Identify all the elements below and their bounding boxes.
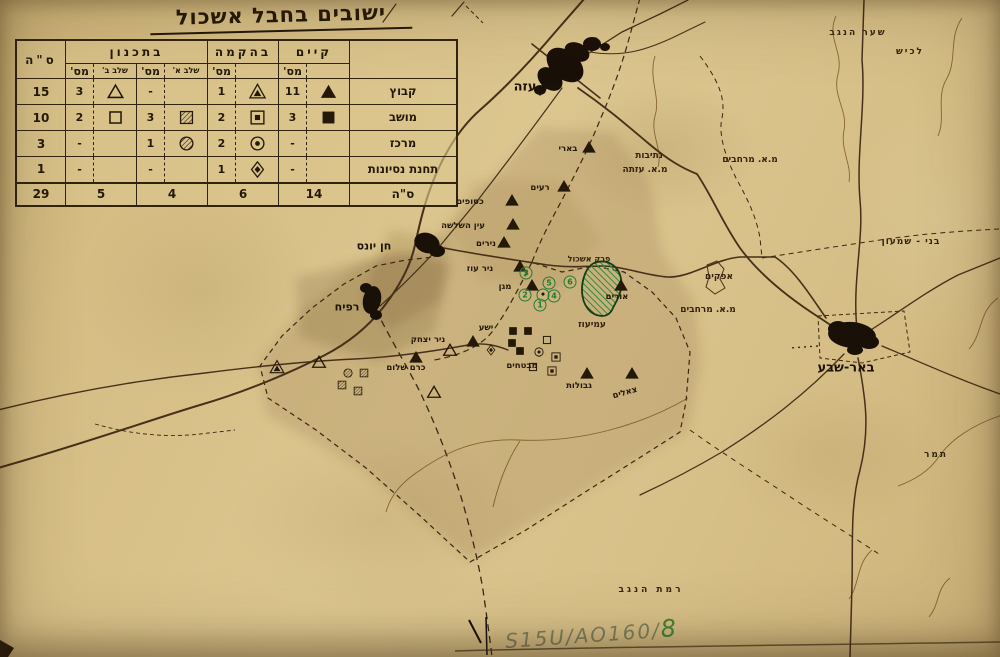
settlement-marker-square-filled <box>523 326 534 337</box>
area-label: אפקים <box>705 272 733 282</box>
area-label: מ.א. מרחבים <box>680 305 736 315</box>
legend-corner-cell <box>350 40 458 79</box>
settlement-marker-triangle-ring <box>270 360 285 375</box>
legend-count-cell: - <box>279 157 307 183</box>
legend-grand-total: 29 <box>16 183 66 206</box>
legend-row-total: 10 <box>16 105 66 131</box>
settlement-marker-square-ring <box>547 366 558 377</box>
settlement-marker-triangle-filled <box>409 350 424 365</box>
legend-symbol-cell <box>165 79 208 105</box>
legend-subheader-stage-b: שלב ב' <box>94 64 137 79</box>
legend-subheader-num: מס' <box>208 64 236 79</box>
settlement-marker-square-empty <box>542 335 553 346</box>
city-label: חן יונס <box>357 240 392 253</box>
legend-total-stage-a: 4 <box>137 183 208 206</box>
legend-subheader-stage-a: שלב א' <box>165 64 208 79</box>
legend-count-cell: - <box>137 157 165 183</box>
legend-row-label: קבוץ <box>350 79 458 105</box>
legend-symbol-cell <box>94 105 137 131</box>
legend-row: מושב323210 <box>16 105 457 131</box>
legend-row: תחנת נסיונות-1--1 <box>16 157 457 183</box>
settlement-marker-triangle-filled <box>580 366 595 381</box>
legend-subheader <box>236 64 279 79</box>
settlement-label: כרם שלום <box>386 363 425 373</box>
settlement-marker-diamond-ring <box>486 345 497 356</box>
legend-subheader-num: מס' <box>137 64 165 79</box>
legend-row: קבוץ111-315 <box>16 79 457 105</box>
city-label: באר-שבע <box>817 361 874 376</box>
legend-symbol-cell <box>236 105 279 131</box>
area-label: תמר <box>924 450 948 460</box>
area-label: מ.א. עזתה <box>623 165 668 175</box>
legend-count-cell: 3 <box>279 105 307 131</box>
area-label: פרק אשכול <box>568 255 611 264</box>
settlement-label: רעים <box>530 183 549 193</box>
area-label: שער הנגב <box>829 28 886 38</box>
legend-totals-label: ס"ה <box>350 183 458 206</box>
legend-count-cell: 2 <box>66 105 94 131</box>
map-scan: ישובים בחבל אשכול קיים בהקמה בתכנון ס"ה … <box>0 0 1000 657</box>
legend-count-cell: 2 <box>208 105 236 131</box>
legend-row-total: 15 <box>16 79 66 105</box>
city-label: עזה <box>514 80 537 95</box>
corner-mark <box>0 640 14 657</box>
legend-row: מרכז-21-3 <box>16 131 457 157</box>
green-number-marker: 3 <box>520 267 533 280</box>
settlement-marker-triangle-filled <box>506 217 521 232</box>
settlement-label: נירים <box>476 239 496 249</box>
settlement-marker-square-filled <box>515 346 526 357</box>
legend-symbol-cell <box>165 105 208 131</box>
legend-count-cell: - <box>66 131 94 157</box>
legend-symbol-cell <box>165 157 208 183</box>
legend-count-cell: 2 <box>208 131 236 157</box>
settlement-marker-triangle-filled <box>557 179 572 194</box>
catalog-number-suffix: 8 <box>660 614 679 643</box>
legend-symbol-cell <box>94 79 137 105</box>
settlement-label: כסופים <box>456 197 484 207</box>
legend-row-label: מרכז <box>350 131 458 157</box>
area-label: בני - שמעון <box>882 237 941 247</box>
settlement-marker-triangle-filled <box>505 193 520 208</box>
legend-table: קיים בהקמה בתכנון ס"ה מס' מס' שלב א' מס'… <box>15 39 458 207</box>
settlement-label: ניר יצחק <box>411 335 446 345</box>
settlement-label: גבולות <box>566 381 592 391</box>
legend-group-planned: בתכנון <box>66 40 208 64</box>
green-number-marker: 4 <box>548 290 561 303</box>
area-label: עמיעוז <box>578 320 606 330</box>
settlement-marker-triangle-empty <box>427 385 442 400</box>
legend-symbol-cell <box>236 131 279 157</box>
settlement-marker-triangle-filled <box>466 334 481 349</box>
settlement-marker-square-hatched <box>359 368 370 379</box>
legend-totals-row: ס"ה1464529 <box>16 183 457 206</box>
legend-count-cell: 1 <box>208 157 236 183</box>
legend-row-label: תחנת נסיונות <box>350 157 458 183</box>
legend-total-stage-b: 5 <box>66 183 137 206</box>
legend-total-construction: 6 <box>208 183 279 206</box>
settlement-label: עין השלשה <box>441 221 485 231</box>
legend-row-total: 1 <box>16 157 66 183</box>
area-label: רמת הנגב <box>619 585 684 595</box>
settlement-marker-square-hatched <box>353 386 364 397</box>
settlement-label: אורים <box>606 292 629 302</box>
area-label: נתיבות <box>635 151 663 161</box>
legend-subheader <box>307 64 350 79</box>
legend-row-label: מושב <box>350 105 458 131</box>
legend-count-cell: 1 <box>208 79 236 105</box>
legend-symbol-cell <box>307 105 350 131</box>
legend-symbol-cell <box>307 131 350 157</box>
settlement-marker-triangle-empty <box>312 355 327 370</box>
settlement-label: מגן <box>499 282 512 292</box>
legend-symbol-cell <box>94 131 137 157</box>
settlement-label: ישע <box>479 323 494 333</box>
settlement-marker-square-ring <box>551 352 562 363</box>
legend-count-cell: 3 <box>66 79 94 105</box>
legend-symbol-cell <box>165 131 208 157</box>
legend-symbol-cell <box>236 79 279 105</box>
green-number-marker: • <box>537 289 550 302</box>
legend-body: קבוץ111-315מושב323210מרכז-21-3תחנת נסיונ… <box>16 79 457 206</box>
city-label: רפיח <box>335 301 360 314</box>
pen-marks <box>469 617 487 655</box>
settlement-marker-triangle-filled <box>614 278 629 293</box>
settlement-marker-square-empty <box>528 362 539 373</box>
settlement-marker-triangle-filled <box>582 140 597 155</box>
settlement-marker-square-filled <box>508 326 519 337</box>
legend-count-cell: 3 <box>137 105 165 131</box>
settlement-marker-circle-hatched <box>343 368 354 379</box>
legend-count-cell: - <box>66 157 94 183</box>
legend-group-construction: בהקמה <box>208 40 279 64</box>
settlement-label: ניר עוז <box>467 264 493 274</box>
settlement-marker-triangle-filled <box>497 235 512 250</box>
legend-count-cell: - <box>137 79 165 105</box>
green-number-marker: 6 <box>564 276 577 289</box>
legend-subheader-num: מס' <box>66 64 94 79</box>
green-number-marker: 5 <box>543 277 556 290</box>
legend-total-existing: 14 <box>279 183 350 206</box>
legend-subheader-num: מס' <box>279 64 307 79</box>
legend-group-existing: קיים <box>279 40 350 64</box>
settlement-marker-triangle-filled <box>625 366 640 381</box>
area-label: מ.א. מרחבים <box>722 155 778 165</box>
legend-symbol-cell <box>94 157 137 183</box>
settlement-marker-triangle-empty <box>443 343 458 358</box>
settlement-label: בארי <box>559 144 578 154</box>
green-number-marker: 2 <box>519 289 532 302</box>
legend-count-cell: 1 <box>137 131 165 157</box>
legend-symbol-cell <box>307 157 350 183</box>
settlement-marker-square-hatched <box>337 380 348 391</box>
legend-symbol-cell <box>236 157 279 183</box>
area-label: לכיש <box>896 47 924 57</box>
legend-symbol-cell <box>307 79 350 105</box>
settlement-marker-circle-ring <box>534 347 545 358</box>
legend-count-cell: 11 <box>279 79 307 105</box>
legend-row-total: 3 <box>16 131 66 157</box>
legend-group-total: ס"ה <box>16 40 66 79</box>
legend-count-cell: - <box>279 131 307 157</box>
